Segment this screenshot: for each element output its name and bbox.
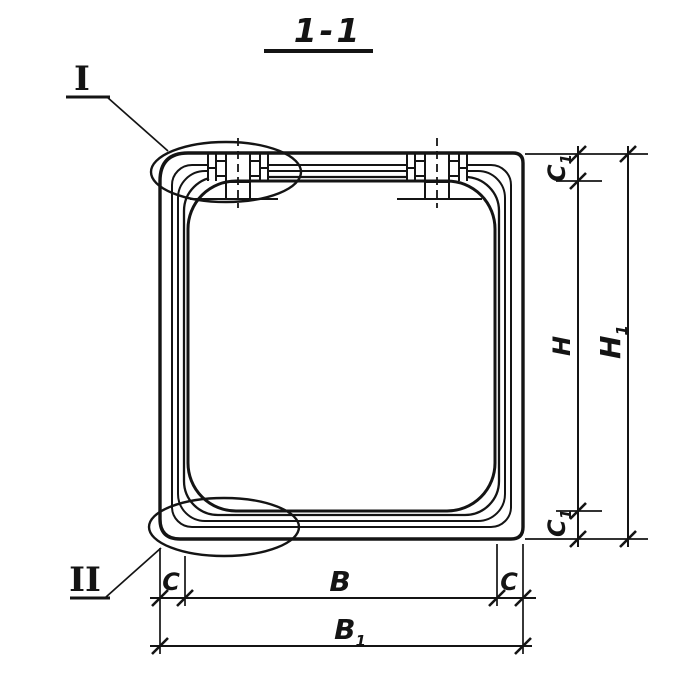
- detail-callout-two: II: [69, 498, 299, 600]
- detail-leader-two: [106, 548, 161, 597]
- outer-contour: [160, 153, 523, 539]
- detail-leader-one: [107, 97, 168, 151]
- detail-label-two: II: [69, 560, 101, 600]
- dim-label-b1: B1: [334, 613, 366, 650]
- dim-label-sub: 1: [557, 509, 575, 519]
- dimensions-bottom: C B C B1: [150, 544, 536, 654]
- dim-label-sub: 1: [613, 325, 631, 335]
- box-section: [160, 153, 523, 539]
- dim-label-base: B: [334, 613, 355, 646]
- dim-label-base: C: [162, 568, 180, 596]
- section-title-group: 1-1: [264, 11, 373, 51]
- dim-label-base: C: [543, 164, 571, 182]
- wall-layer-3: [184, 177, 499, 515]
- joint-right: [397, 138, 482, 208]
- wall-layer-1: [172, 165, 511, 527]
- dim-label-c1-top: C1: [543, 154, 575, 182]
- dim-label-base: C: [500, 568, 518, 596]
- dim-label-base: H: [548, 336, 576, 356]
- dim-label-h1: H1: [594, 325, 631, 359]
- dim-label-c1-bottom: C1: [543, 509, 575, 537]
- dimensions-right: C1 H H1 C1: [525, 146, 648, 547]
- dim-label-base: B: [329, 565, 350, 598]
- dim-label-base: C: [543, 519, 571, 537]
- dim-label-c-left: C: [162, 568, 180, 596]
- dim-label-c-right: C: [500, 568, 518, 596]
- wall-layer-2: [178, 171, 505, 521]
- dim-label-sub: 1: [557, 154, 575, 164]
- dim-label-base: H: [594, 336, 627, 359]
- section-drawing: 1-1: [0, 0, 700, 700]
- detail-label-one: I: [74, 59, 90, 99]
- dim-label-b: B: [329, 565, 350, 598]
- inner-opening: [188, 181, 495, 511]
- dim-label-sub: 1: [355, 632, 365, 650]
- dim-label-h: H: [548, 336, 576, 356]
- section-title: 1-1: [294, 11, 363, 50]
